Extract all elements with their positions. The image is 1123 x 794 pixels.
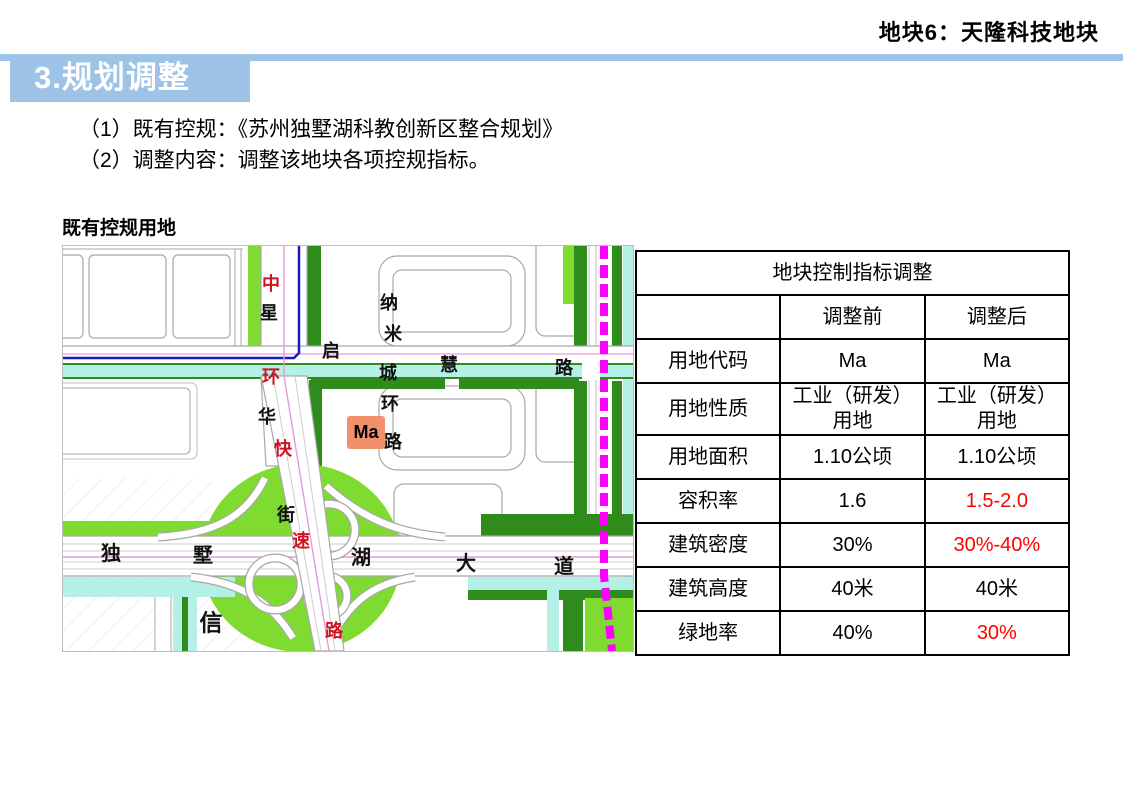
value-before: 40% (780, 611, 924, 655)
map-caption: 既有控规用地 (62, 213, 176, 240)
map-road-label: 慧 (440, 356, 458, 374)
page-header: 地块6：天隆科技地块 (879, 15, 1099, 47)
intro-text: （1）既有控规：《苏州独墅湖科教创新区整合规划》 （2）调整内容：调整该地块各项… (79, 114, 563, 176)
row-label: 用地性质 (636, 383, 780, 435)
map-road-label: 信 (200, 612, 223, 635)
map-road-label: 路 (384, 433, 402, 451)
value-after: 1.10公顷 (925, 435, 1069, 479)
table-row: 容积率1.61.5-2.0 (636, 479, 1069, 523)
value-before: 1.10公顷 (780, 435, 924, 479)
value-before: 1.6 (780, 479, 924, 523)
map-road-label: 路 (555, 359, 573, 377)
slide: 地块6：天隆科技地块 3.规划调整 （1）既有控规：《苏州独墅湖科教创新区整合规… (0, 0, 1123, 794)
value-before: 工业（研发）用地 (780, 383, 924, 435)
map-road-label: 快 (274, 440, 292, 458)
row-label: 绿地率 (636, 611, 780, 655)
value-after: 30% (925, 611, 1069, 655)
map-road-label: 华 (258, 408, 276, 426)
value-before: 40米 (780, 567, 924, 611)
map-road-label: 街 (277, 506, 295, 524)
value-after: 40米 (925, 567, 1069, 611)
value-after: 工业（研发）用地 (925, 383, 1069, 435)
table-header-row: 调整前 调整后 (636, 295, 1069, 339)
col-header-before: 调整前 (780, 295, 924, 339)
map-road-label: 城 (379, 364, 397, 382)
map-road-label: 路 (325, 622, 343, 640)
table-row: 建筑密度30%30%-40% (636, 523, 1069, 567)
map-road-label: 米 (384, 325, 402, 343)
value-before: 30% (780, 523, 924, 567)
table-body: 地块控制指标调整 调整前 调整后 用地代码MaMa用地性质工业（研发）用地工业（… (636, 251, 1069, 655)
table-title: 地块控制指标调整 (636, 251, 1069, 295)
value-after: 1.5-2.0 (925, 479, 1069, 523)
map-road-label: 大 (456, 554, 476, 574)
col-header-after: 调整后 (925, 295, 1069, 339)
map-road-label: 环 (262, 368, 280, 386)
intro-line-1: （1）既有控规：《苏州独墅湖科教创新区整合规划》 (79, 114, 563, 145)
zoning-map: 中星环华快街速路纳米城环路启慧路独墅湖大道信 Ma (62, 245, 634, 652)
value-after: Ma (925, 339, 1069, 383)
table-title-row: 地块控制指标调整 (636, 251, 1069, 295)
table-row: 用地性质工业（研发）用地工业（研发）用地 (636, 383, 1069, 435)
table-row: 建筑高度40米40米 (636, 567, 1069, 611)
map-road-label: 环 (381, 395, 399, 413)
row-label: 容积率 (636, 479, 780, 523)
col-header-blank (636, 295, 780, 339)
value-after: 30%-40% (925, 523, 1069, 567)
map-road-label: 纳 (380, 294, 398, 312)
ma-parcel: Ma (347, 416, 385, 449)
table-row: 用地代码MaMa (636, 339, 1069, 383)
map-road-label: 中 (262, 275, 280, 293)
section-banner: 3.规划调整 (10, 54, 250, 102)
row-label: 建筑高度 (636, 567, 780, 611)
map-road-label: 湖 (351, 548, 371, 568)
map-road-label: 星 (260, 304, 278, 322)
map-road-label: 墅 (193, 546, 213, 566)
map-road-label: 速 (292, 532, 310, 550)
table-row: 绿地率40%30% (636, 611, 1069, 655)
control-indicator-table: 地块控制指标调整 调整前 调整后 用地代码MaMa用地性质工业（研发）用地工业（… (635, 250, 1070, 656)
value-before: Ma (780, 339, 924, 383)
table-row: 用地面积1.10公顷1.10公顷 (636, 435, 1069, 479)
map-road-label: 道 (554, 557, 574, 577)
row-label: 用地面积 (636, 435, 780, 479)
intro-line-2: （2）调整内容：调整该地块各项控规指标。 (79, 145, 563, 176)
map-road-label: 启 (322, 342, 340, 360)
map-road-label: 独 (101, 544, 121, 564)
row-label: 建筑密度 (636, 523, 780, 567)
row-label: 用地代码 (636, 339, 780, 383)
